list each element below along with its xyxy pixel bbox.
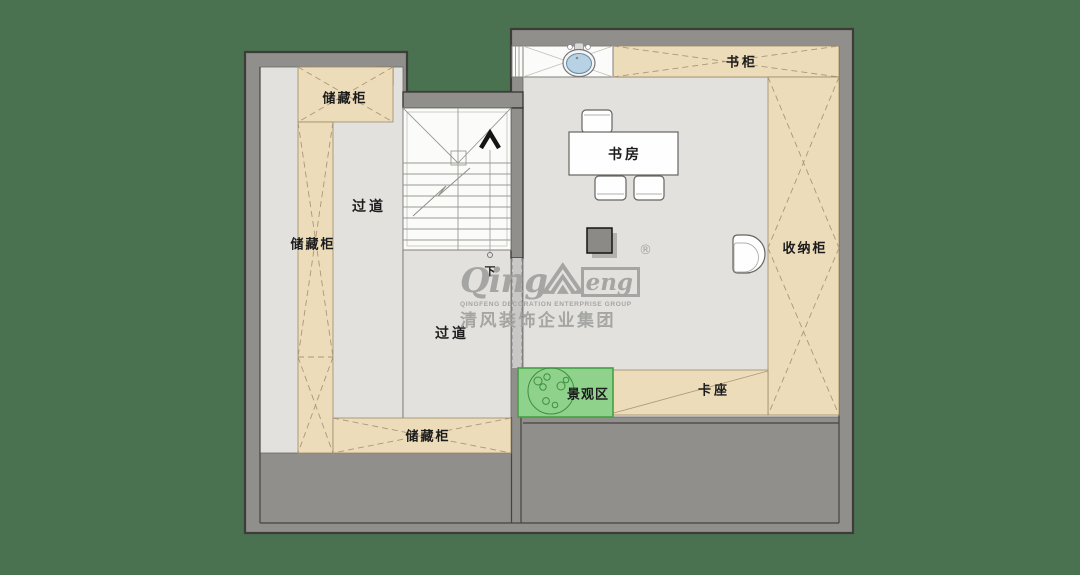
staircase	[403, 108, 511, 258]
desk-chair-right	[634, 176, 664, 200]
label-landscape: 景观区	[567, 384, 609, 403]
connector-wall	[403, 92, 523, 108]
label-storage-left: 储藏柜	[290, 234, 335, 253]
brand-wordmark: Qing eng ®	[460, 246, 640, 298]
window-strip	[512, 46, 523, 77]
armchair	[733, 235, 765, 273]
label-bookcase: 书柜	[726, 52, 758, 71]
floor-plan-canvas: 储藏柜 过道 储藏柜 过道 储藏柜 书柜 书房 收纳柜 卡座 景观区 下 Qin…	[0, 0, 1080, 575]
desk-chair-left	[595, 176, 626, 200]
mountain-logo-icon	[541, 257, 585, 299]
registered-mark: ®	[639, 244, 652, 257]
brand-watermark: Qing eng ® QINGFENG DECORATION ENTERPRIS…	[460, 246, 640, 329]
brand-chinese-name: 清风装饰企业集团	[460, 312, 640, 329]
label-booth: 卡座	[698, 380, 730, 399]
label-corridor-upper: 过道	[352, 196, 386, 216]
brand-wordmark-prefix: Qing	[460, 264, 547, 298]
brand-wordmark-suffix: eng	[581, 267, 640, 297]
label-storage-top: 储藏柜	[322, 88, 367, 107]
stair-side-wall	[511, 108, 523, 258]
label-storage-bottom: 储藏柜	[405, 426, 450, 445]
sink-icon	[563, 43, 595, 77]
label-study: 书房	[608, 144, 642, 164]
desk-chair-top	[582, 110, 612, 133]
brand-tagline: QINGFENG DECORATION ENTERPRISE GROUP	[460, 302, 640, 309]
label-organizer: 收纳柜	[782, 238, 827, 257]
cabinet-storage-left	[298, 122, 333, 453]
